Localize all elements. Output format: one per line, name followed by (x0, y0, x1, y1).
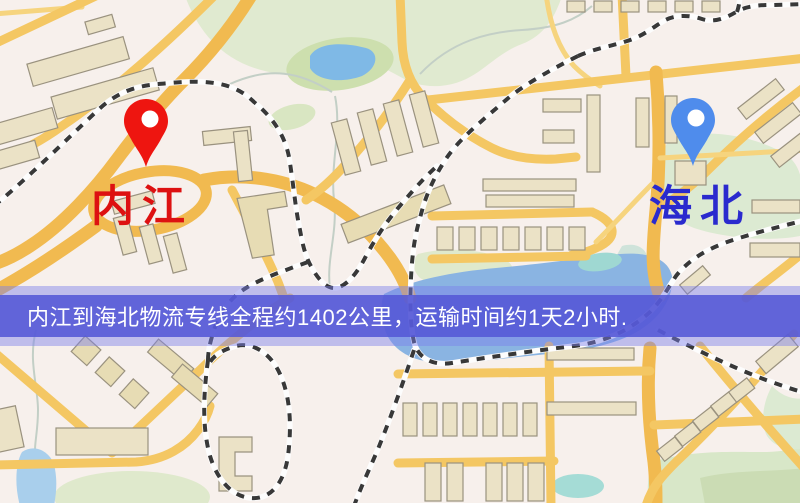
origin-label: 内江 (91, 183, 193, 231)
logistics-route-map: 内江 海北 内江到海北物流专线全程约1402公里，运输时间约1天2小时. (0, 0, 800, 503)
banner-text: 内江到海北物流专线全程约1402公里，运输时间约1天2小时. (27, 300, 628, 332)
info-banner: 内江到海北物流专线全程约1402公里，运输时间约1天2小时. (0, 286, 800, 346)
map-canvas: 内江 海北 (0, 0, 800, 503)
destination-label: 海北 (649, 183, 751, 231)
info-banner-strip: 内江到海北物流专线全程约1402公里，运输时间约1天2小时. (0, 295, 800, 337)
